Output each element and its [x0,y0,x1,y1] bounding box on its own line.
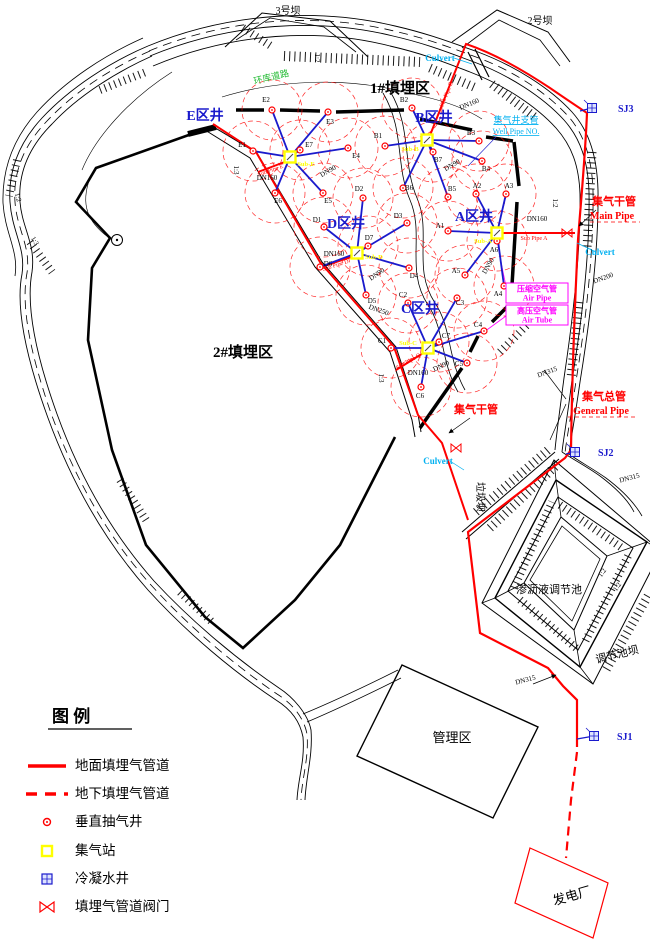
legend-item-condensate-square: 冷凝水井 [42,871,129,886]
well-dot [402,187,404,189]
dn-label-c90: DN90 [432,359,451,374]
well-label-D3: D3 [394,212,403,220]
well-dot [365,294,367,296]
slope-label-2: 1:3 [232,166,240,175]
well-label-C6: C6 [416,392,425,400]
condensate-well-SJ2: SJ2 [566,444,614,459]
station-label-A: Sub-A [474,238,492,245]
legend-title: 图 例 [52,706,90,726]
sj-label-SJ3: SJ3 [618,104,634,115]
well-label-C1: C1 [378,337,387,345]
main-pipe-label-en: Main Pipe [590,211,635,222]
well-pipe-label-cn: 集气井支管 [493,114,538,125]
well-label-E6: E6 [274,197,282,205]
well-pipe-spoke [427,140,479,141]
dn-label-200: DN200 [592,271,615,286]
air-box-en: Air Tube [522,316,553,325]
well-label-D1: D1 [313,216,322,224]
well-label-A2: A2 [473,182,482,190]
well-label-B2: B2 [400,96,409,104]
legend-item-station-square: 集气站 [42,843,116,858]
slope-label-6: 1:3 [377,374,385,383]
well-dot [347,147,349,149]
well-label-D2: D2 [355,185,364,193]
well-pipe-spoke [290,112,328,157]
slope-label-8: 1:2 [612,580,624,592]
well-label-B5: B5 [448,185,457,193]
well-dot [271,109,273,111]
dam2-label: 2号坝 [528,15,553,27]
well-pipe-spoke [448,231,497,233]
well-pipe-label-en: Well Pipe NO. [493,127,540,136]
dn-label-c160: DN160 [408,369,429,377]
general-pipe-label-en: General Pipe [573,406,629,417]
main-pipe2-label-cn: 集气干管 [453,402,498,416]
ring-road [3,15,642,800]
valve-icon [451,444,461,452]
well-dot [299,149,301,151]
general-pipe [468,113,587,747]
well-label-C2: C2 [399,291,408,299]
culvert-label-3: Culvert [423,456,453,466]
well-label-D7: D7 [365,234,374,242]
station-label-B: Sub-B [401,146,419,153]
well-label-B7: B7 [434,156,443,164]
legend-item-well-circle: 垂直抽气井 [44,814,143,829]
cluster-E: E1E2E3E4E5E6E7Sub-EE区井 [186,80,378,223]
well-dot [323,226,325,228]
landfill2-boundary [76,126,421,648]
slope-label-1: 1:2 [313,54,321,63]
dn-label-315a: DN315 [618,471,640,484]
slope-label-5: 1:2 [551,199,559,208]
well-dot [447,230,449,232]
well-label-B3: B3 [467,129,476,137]
general-pipe-label-cn: 集气总管 [581,389,626,403]
well-label-B1: B1 [374,132,383,140]
well-dot [322,192,324,194]
well-dot [46,821,48,823]
air-box-0: 压缩空气管Air Pipe [506,283,568,303]
well-dot [406,222,408,224]
legend-item-label: 冷凝水井 [75,871,129,886]
legend-item-solid-line: 地面填埋气管道 [28,758,170,773]
legend-item-valve-bowtie: 填埋气管道阀门 [40,899,170,914]
cluster-label-B: B区井 [415,109,452,126]
power-plant-label: 发电厂 [551,883,593,908]
management-label: 管理区 [432,730,471,745]
sub-pipe-a-label: Sub Pipe A [520,236,548,242]
pond-dam-label: 调节池坝 [594,642,640,666]
culvert-label-1: Culvert [425,53,455,63]
well-label-D4: D4 [410,272,419,280]
cluster-C: C1C2C3C4C5C6C7Sub-CC区井 [361,268,514,417]
cluster-label-A: A区井 [455,208,493,225]
pond-label: 渗沥液调节池 [516,582,582,596]
condensate-well-SJ1: SJ1 [577,728,633,743]
condensate-flag [584,100,588,104]
dn-label-a160: DN160 [527,215,548,223]
well-dot [438,341,440,343]
legend-item-label: 地面填埋气管道 [75,758,170,773]
landfill2-label: 2#填埋区 [213,343,273,361]
sj-label-SJ1: SJ1 [617,732,633,743]
well-dot [505,193,507,195]
legend-item-dashed-line: 地下填埋气管道 [26,786,170,801]
air-pipe-callouts: 压缩空气管Air Pipe高压空气管Air Tube [506,283,568,325]
well-dot [408,267,410,269]
well-label-E2: E2 [262,96,270,104]
condensate-flag [586,728,590,732]
air-box-en: Air Pipe [523,294,552,303]
well-dot [464,274,466,276]
dn-label-b90: DN90 [443,157,462,173]
well-label-C7: C7 [442,332,451,340]
well-dot [483,330,485,332]
station-label-D: Sub-D [365,254,383,261]
legend: 图 例 地面填埋气管道地下填埋气管道垂直抽气井集气站冷凝水井填埋气管道阀门 [26,706,170,914]
air-box-1: 高压空气管Air Tube [506,305,568,325]
dn-label-315c: DN315 [514,673,536,686]
dn-label-d250: DN250 [368,303,391,318]
garbage-dam-label: 垃圾坝 [474,482,487,512]
dn-label-d90: DN90 [368,266,387,283]
dn-label-315b: DN315 [536,365,559,380]
well-dot [475,193,477,195]
well-dot [327,111,329,113]
cluster-label-C: C区井 [401,300,439,317]
well-dot [274,192,276,194]
well-label-C5: C5 [455,360,464,368]
well-dot [367,245,369,247]
culvert-label-2: Culvert [585,247,615,257]
condensate-well-SJ3: SJ3 [580,100,634,115]
well-label-E7: E7 [305,141,313,149]
dn-label-d160: DN160 [324,250,345,258]
well-label-A3: A3 [505,182,514,190]
valve-icon [40,902,54,912]
well-dot [390,347,392,349]
well-label-E4: E4 [352,152,360,160]
station-label-C: Sub-C [399,340,417,347]
well-dot [496,240,498,242]
main-pipe-label-cn: 集气干管 [591,194,636,208]
well-dot [252,150,254,152]
cluster-label-D: D区井 [327,215,365,232]
dam3-label: 3号坝 [276,5,301,17]
well-dot [384,145,386,147]
well-dot [432,151,434,153]
slope-label-3: 1:2 [13,192,23,203]
gas-station-icon [42,846,52,856]
well-dot [503,285,505,287]
sub-pipe-b-label: Sub Pipe B [439,81,455,108]
well-dot [411,107,413,109]
dn-label-e160: DN160 [257,174,278,182]
underground-pipe-to-plant [566,752,577,858]
well-dot [478,140,480,142]
well-dot [362,197,364,199]
well-label-A4: A4 [494,290,503,298]
well-dot [447,196,449,198]
legend-item-label: 垂直抽气井 [75,814,143,829]
station-label-E: Sub-E [297,161,314,168]
air-box-cn: 压缩空气管 [517,284,557,294]
cluster-B: B1B2B3B4B5B6B7Sub-BB区井 [355,78,512,227]
ring-road-label: 环库道路 [252,67,290,86]
well-dot [420,386,422,388]
well-label-B6: B6 [405,184,414,192]
landfill1-label: 1#填埋区 [370,79,430,97]
well-dot [466,362,468,364]
slope-label-7: 1:2 [597,566,609,578]
site-plan-svg: E1E2E3E4E5E6E7Sub-EE区井B1B2B3B4B5B6B7Sub-… [0,0,650,941]
cluster-label-E: E区井 [186,107,223,124]
well-label-A6: A6 [490,246,499,254]
legend-item-label: 集气站 [75,843,116,858]
well-dot [481,160,483,162]
well-label-E1: E1 [238,141,246,149]
well-label-E3: E3 [326,118,334,126]
landfill-gas-site-plan: E1E2E3E4E5E6E7Sub-EE区井B1B2B3B4B5B6B7Sub-… [0,0,650,941]
legend-item-label: 填埋气管道阀门 [75,899,170,914]
air-box-cn: 高压空气管 [517,306,557,316]
well-label-C3: C3 [456,299,465,307]
dn-label-b160: DN160 [458,96,481,111]
well-label-C4: C4 [474,321,483,329]
sj-label-SJ2: SJ2 [598,448,614,459]
legend-item-label: 地下填埋气管道 [75,786,170,801]
well-clusters: E1E2E3E4E5E6E7Sub-EE区井B1B2B3B4B5B6B7Sub-… [186,78,536,417]
